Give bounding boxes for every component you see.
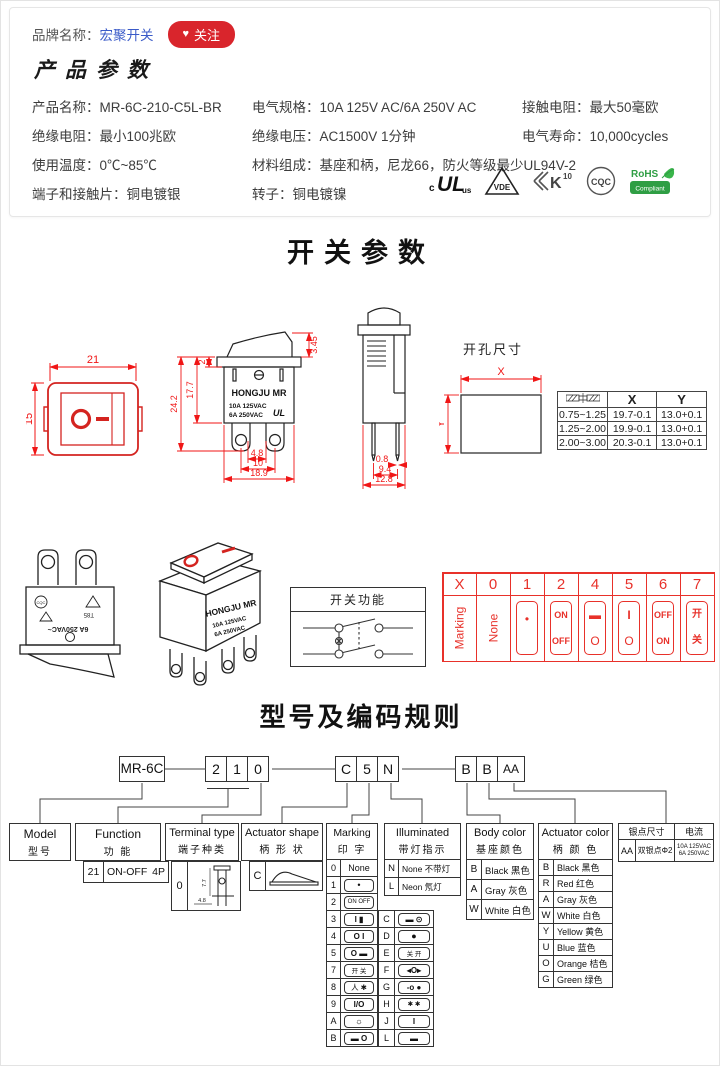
inv-cqc-mark: CQC — [37, 600, 46, 605]
marking-rows-b: C ▬ ⊙ D ● E 关 开 F ◂O▸ G -o ● H ✱ ✱ J I L — [378, 911, 434, 1047]
dim-pin-pitch: 10 — [253, 458, 263, 468]
hole-size-table: X Y 0.75~1.25 19.7-0.1 13.0+0.1 1.25~2.0… — [557, 391, 707, 450]
glyph-top: I — [627, 608, 630, 622]
cell-x: 19.7-0.1 — [608, 408, 657, 422]
section-title-coding-rules: 型号及编码规则 — [1, 697, 720, 734]
silver-cur2: 6A 250VAC — [675, 851, 713, 858]
spec-terminal-plating: 端子和接触片：铜电镀银 — [32, 183, 181, 203]
column-actuator-shape: Actuator shape 柄 形 状 — [241, 823, 323, 861]
mark-code: J — [379, 1013, 395, 1029]
actuator-color-row: O Orange 桔色 — [538, 955, 613, 972]
spec-insulation-voltage: 绝缘电压：AC1500V 1分钟 — [252, 125, 416, 145]
spec-insulation-resistance: 绝缘电阻：最小100兆欧 — [32, 125, 176, 145]
rocker-dash-mark — [96, 417, 109, 421]
glyph-bottom: O — [590, 634, 599, 648]
col-cn: 柄 形 状 — [242, 841, 322, 856]
cell-y: 13.0+0.1 — [657, 408, 707, 422]
body-color-rows: B Black 黑色 A Gray 灰色 W White 白色 — [466, 860, 534, 920]
mk-header-2: 2 — [544, 573, 579, 596]
color-code: B — [539, 860, 554, 875]
table-row: 2.00~3.00 20.3-0.1 13.0+0.1 — [558, 436, 707, 450]
dim-total-height: 24.2 — [169, 395, 179, 413]
illum-label: None 不带灯 — [399, 863, 460, 875]
brand-row: 品牌名称： 宏聚开关 ♥ 关注 — [32, 21, 235, 47]
code-group-3: B B AA — [456, 756, 525, 782]
cell-thickness: 0.75~1.25 — [558, 408, 608, 422]
spec-label: 端子和接触片： — [32, 187, 127, 202]
silver-desc: 双银点Φ2 — [636, 840, 675, 861]
glyph-bottom: O — [624, 634, 633, 648]
marking-row: 2 ON OFF — [326, 893, 378, 911]
body-color-row: A Gray 灰色 — [466, 879, 534, 900]
cell-thickness: 1.25~2.00 — [558, 422, 608, 436]
switch-3d-drawing: HONGJU MR 10A 125VAC 6A 250VAC — [146, 533, 278, 695]
spec-value: 0℃~85℃ — [100, 158, 157, 173]
follow-label: 关注 — [194, 25, 220, 44]
color-code: W — [539, 908, 554, 923]
certification-icons: c UL us VDE K 10 CQC RoHS Compliant — [428, 164, 678, 198]
mark-code: 9 — [327, 996, 341, 1012]
mk-glyph-off-on: OFF ON — [652, 601, 674, 655]
mk-glyph-dot: • — [516, 601, 538, 655]
column-function: Function 功 能 — [75, 823, 161, 861]
marking-row: H ✱ ✱ — [378, 995, 434, 1013]
code-21-underline — [207, 788, 249, 789]
hole-cutout-drawing: X Y — [439, 353, 554, 465]
cqc-cert-icon: CQC — [584, 164, 618, 198]
color-code: O — [539, 956, 554, 971]
inv-t85-label: T85 — [83, 611, 94, 617]
front-view-drawing: 21 15 — [26, 331, 176, 483]
mk-header-6: 6 — [646, 573, 681, 596]
color-label: Red 红色 — [554, 877, 612, 890]
silver-h2: 电流 — [675, 825, 713, 838]
terminal-code: 0 — [172, 862, 188, 910]
marking-code-table: X 0 1 2 4 5 6 7 Marking None • ON OFF ▬ … — [442, 572, 715, 662]
col-cn: 印 字 — [327, 841, 377, 856]
mk-header-7: 7 — [680, 573, 715, 596]
body-color-row: W White 白色 — [466, 899, 534, 920]
mk-glyph-i-o: I O — [618, 601, 640, 655]
dim-end-pin-width: 0.8 — [376, 454, 389, 464]
heart-icon: ♥ — [183, 29, 190, 40]
color-label: Gray 灰色 — [554, 893, 612, 906]
rohs-mark: RoHS — [631, 169, 659, 180]
col-en: Marking — [327, 827, 377, 839]
col-cn: 型号 — [10, 843, 70, 858]
column-terminal-type: Terminal type 端子种类 — [165, 823, 239, 861]
mark-glyph: 人 ✱ — [344, 981, 374, 994]
silver-point-box: 银点尺寸 电流 AA 双银点Φ2 10A 125VAC 6A 250VAC — [618, 824, 714, 862]
spec-label: 电气规格： — [252, 100, 320, 115]
color-label: Yellow 黄色 — [554, 925, 612, 938]
table-row: 0.75~1.25 19.7-0.1 13.0+0.1 — [558, 408, 707, 422]
color-code: A — [539, 892, 554, 907]
color-label: Orange 桔色 — [554, 957, 612, 970]
dim-flange: 2 — [197, 359, 207, 364]
mk-none-label: None — [486, 614, 500, 643]
function-rows: 21 ON-OFF 4P — [83, 862, 169, 883]
col-en: Actuator shape — [242, 827, 322, 839]
column-model: Model 型号 — [9, 823, 71, 861]
dim-pin-gap: 4.8 — [251, 448, 264, 458]
mark-code: E — [379, 945, 395, 961]
marking-row: J I — [378, 1012, 434, 1030]
end-view-drawing: 0.8 9.4 12.8 — [334, 293, 449, 498]
marking-row: 9 I/O — [326, 995, 378, 1013]
spec-value: AC1500V 1分钟 — [320, 129, 416, 144]
mark-code: C — [379, 911, 395, 927]
spec-label: 绝缘电阻： — [32, 129, 100, 144]
section-title-product-params: 产品参数 — [34, 54, 158, 84]
mark-code: 1 — [327, 877, 341, 893]
mk-header-5: 5 — [612, 573, 647, 596]
marking-row: G -o ● — [378, 978, 434, 996]
color-code: U — [539, 940, 554, 955]
mk-glyph-kai-guan: 开 关 — [686, 601, 708, 655]
vde-mark: VDE — [494, 183, 511, 192]
mark-code: L — [379, 1030, 395, 1046]
dim-front-width: 21 — [87, 354, 99, 366]
spec-label: 使用温度： — [32, 158, 100, 173]
col-en: Model — [10, 827, 70, 841]
mark-code: 8 — [327, 979, 341, 995]
mark-code: H — [379, 996, 395, 1012]
brand-label: 品牌名称： — [32, 24, 100, 44]
spec-value: 最小100兆欧 — [100, 129, 177, 144]
code-cell: 2 — [205, 756, 227, 782]
color-label: Green 绿色 — [554, 973, 612, 986]
glyph-top: ▬ — [589, 608, 601, 622]
marking-row: 1 • — [326, 876, 378, 894]
marking-row: 0 None — [326, 859, 378, 877]
marking-row: L ▬ — [378, 1029, 434, 1047]
spec-electrical-life: 电气寿命：10,000cycles — [522, 125, 668, 145]
body-color-row: B Black 黑色 — [466, 859, 534, 880]
cell-x: 20.3-0.1 — [608, 436, 657, 450]
mk-header-4: 4 — [578, 573, 613, 596]
mark-code: G — [379, 979, 395, 995]
mark-glyph: ▬ — [398, 1032, 430, 1045]
function-value: ON-OFF — [104, 866, 152, 878]
marking-row: A ☼ — [326, 1012, 378, 1030]
table-row: 1.25~2.00 19.9-0.1 13.0+0.1 — [558, 422, 707, 436]
mark-code: 7 — [327, 962, 341, 978]
side-rating1: 10A 125VAC — [229, 403, 267, 410]
mark-glyph: ✱ ✱ — [398, 998, 430, 1011]
mark-glyph: -o ● — [398, 981, 430, 994]
function-poles: 4P — [152, 866, 168, 878]
marking-row: E 关 开 — [378, 944, 434, 962]
hole-y-label: Y — [439, 420, 447, 428]
code-cell: AA — [497, 756, 525, 782]
k10-num: 10 — [563, 172, 572, 181]
rohs-sub: Compliant — [635, 186, 664, 193]
cqc-mark: CQC — [591, 177, 612, 187]
product-page: 品牌名称： 宏聚开关 ♥ 关注 产品参数 产品名称：MR-6C-210-C5L-… — [0, 0, 720, 1066]
side-view-drawing: HONGJU MR 10A 125VAC 6A 250VAC UL 3.45 2… — [169, 293, 334, 493]
section-title-switch-params: 开关参数 — [1, 231, 720, 270]
mark-glyph: 开 关 — [344, 964, 374, 977]
silver-cur1: 10A 125VAC — [675, 844, 713, 851]
dim-body-height: 17.7 — [185, 381, 195, 399]
color-code: G — [539, 972, 554, 987]
spec-temperature: 使用温度：0℃~85℃ — [32, 154, 157, 174]
hole-col-y: Y — [657, 392, 707, 408]
column-body-color: Body color 基座颜色 — [466, 823, 534, 861]
illuminated-row: N None 不带灯 — [384, 859, 461, 878]
shape-rows: C — [249, 862, 323, 891]
cell-y: 13.0+0.1 — [657, 436, 707, 450]
coding-tree-connectors — [1, 741, 720, 831]
illuminated-rows: N None 不带灯 L Neon 氖灯 — [384, 860, 461, 896]
actuator-color-row: U Blue 蓝色 — [538, 939, 613, 956]
mark-glyph: ◂O▸ — [398, 964, 430, 977]
spec-label: 产品名称： — [32, 100, 100, 115]
color-code: R — [539, 876, 554, 891]
mark-glyph: None — [341, 863, 377, 873]
glyph-bottom: ON — [656, 637, 670, 646]
spec-label: 绝缘电压： — [252, 129, 320, 144]
spec-value: 最大50毫欧 — [590, 100, 659, 115]
side-ul-mark: UL — [273, 408, 285, 418]
col-en: Illuminated — [385, 827, 460, 839]
switch-function-box: 开关功能 — [290, 587, 426, 667]
spec-electrical: 电气规格：10A 125V AC/6A 250V AC — [252, 96, 476, 116]
function-code: 21 — [84, 862, 104, 882]
switch-function-schematic — [291, 612, 425, 666]
terminal-row-0: 0 7.7 4.8 — [171, 861, 241, 911]
mk-header-1: 1 — [510, 573, 545, 596]
ul-cert-icon: c UL us — [428, 164, 474, 198]
glyph-bottom: 关 — [692, 636, 702, 646]
col-en: Body color — [467, 827, 533, 839]
marking-row: D ● — [378, 927, 434, 945]
actuator-color-row: W White 白色 — [538, 907, 613, 924]
color-code: Y — [539, 924, 554, 939]
actuator-color-rows: B Black 黑色 R Red 红色 A Gray 灰色 W White 白色… — [538, 860, 613, 988]
col-cn: 带灯指示 — [385, 841, 460, 856]
code-cell: C — [335, 756, 357, 782]
color-label: Black 黑色 — [554, 861, 612, 874]
mark-code: 4 — [327, 928, 341, 944]
spec-value: 10A 125V AC/6A 250V AC — [320, 100, 477, 115]
silver-value-row: AA 双银点Φ2 10A 125VAC 6A 250VAC — [618, 839, 714, 862]
vde-cert-icon: VDE — [484, 164, 520, 198]
marking-rows-a: 0 None 1 • 2 ON OFF 3 I ▮ 4 O I 5 O ▬ 7 … — [326, 860, 378, 1047]
mark-code: 5 — [327, 945, 341, 961]
function-row-21: 21 ON-OFF 4P — [83, 861, 169, 883]
product-info-card: 品牌名称： 宏聚开关 ♥ 关注 产品参数 产品名称：MR-6C-210-C5L-… — [9, 7, 711, 217]
k10-cert-icon: K 10 — [530, 164, 574, 198]
shape-row-c: C — [249, 861, 323, 891]
follow-button[interactable]: ♥ 关注 — [168, 21, 236, 48]
dim-end-width: 12.8 — [375, 474, 393, 484]
terminal-dim-h: 4.8 — [198, 898, 206, 904]
marking-row: 7 开 关 — [326, 961, 378, 979]
color-label: White 白色 — [554, 909, 612, 922]
inv-rating-label: 6A 250VAC~ — [48, 625, 89, 632]
col-cn: 功 能 — [76, 843, 160, 858]
col-cn: 柄 颜 色 — [539, 841, 612, 856]
spec-label: 接触电阻： — [522, 100, 590, 115]
glyph-top: 开 — [692, 610, 702, 620]
dim-width: 18.9 — [250, 468, 268, 478]
hole-col-x: X — [608, 392, 657, 408]
switch-function-title: 开关功能 — [291, 588, 425, 612]
col-cn: 基座颜色 — [467, 841, 533, 856]
actuator-color-row: R Red 红色 — [538, 875, 613, 892]
spec-product-name: 产品名称：MR-6C-210-C5L-BR — [32, 96, 222, 116]
mk-row-label: Marking — [453, 607, 467, 650]
mark-glyph: ▬ ⊙ — [398, 913, 430, 926]
glyph-top: • — [525, 612, 529, 626]
actuator-color-row: A Gray 灰色 — [538, 891, 613, 908]
color-label: Blue 蓝色 — [554, 941, 612, 954]
column-marking: Marking 印 字 — [326, 823, 378, 861]
mark-glyph: ● — [398, 930, 430, 943]
mark-code: B — [327, 1030, 341, 1046]
mark-glyph: ▬ O — [344, 1032, 374, 1045]
dim-tilt: 3.45 — [309, 336, 319, 354]
mark-glyph: ON OFF — [344, 896, 374, 909]
column-illuminated: Illuminated 带灯指示 — [384, 823, 461, 861]
side-brand-label: HONGJU MR — [231, 388, 287, 398]
color-code: B — [467, 860, 482, 879]
spec-label: 电气寿命： — [522, 129, 590, 144]
spec-label: 材料组成： — [252, 158, 320, 173]
code-group-2: C 5 N — [336, 756, 399, 782]
mk-header-0: 0 — [476, 573, 511, 596]
col-cn: 端子种类 — [166, 841, 238, 856]
color-code: A — [467, 880, 482, 899]
mark-glyph: O I — [344, 930, 374, 943]
shape-code: C — [250, 862, 266, 890]
col-en: Actuator color — [539, 827, 612, 839]
actuator-color-row: B Black 黑色 — [538, 859, 613, 876]
terminal-rows: 0 7.7 4.8 — [171, 862, 241, 911]
mark-code: F — [379, 962, 395, 978]
mark-glyph: I/O — [344, 998, 374, 1011]
mark-code: D — [379, 928, 395, 944]
code-cell: 0 — [247, 756, 269, 782]
mark-glyph: O ▬ — [344, 947, 374, 960]
mk-glyph-dash-o: ▬ O — [584, 601, 606, 655]
color-label: Black 黑色 — [482, 863, 533, 877]
spec-value: 铜电镀镍 — [293, 187, 347, 202]
spec-rotor-plating: 转子：铜电镀镍 — [252, 183, 347, 203]
mark-glyph: ☼ — [344, 1015, 374, 1028]
dim-front-height: 15 — [26, 413, 35, 425]
inverted-switch-drawing: CQC T85 6A 250VAC~ — [16, 541, 128, 691]
ul-c: c — [429, 183, 435, 194]
code-box-model: MR-6C — [119, 756, 165, 782]
col-en: Terminal type — [166, 827, 238, 839]
glyph-bottom: OFF — [552, 637, 570, 646]
spec-value: 10,000cycles — [590, 129, 669, 144]
illum-label: Neon 氖灯 — [399, 881, 460, 893]
brand-name-link[interactable]: 宏聚开关 — [100, 24, 154, 44]
cell-y: 13.0+0.1 — [657, 422, 707, 436]
terminal-dim-v: 7.7 — [202, 879, 208, 887]
color-label: Gray 灰色 — [482, 883, 533, 897]
color-label: White 白色 — [482, 903, 533, 917]
mark-glyph: I — [398, 1015, 430, 1028]
color-code: W — [467, 900, 482, 919]
col-en: Function — [76, 827, 160, 841]
code-group-1: 2 1 0 — [206, 756, 269, 782]
glyph-top: OFF — [654, 611, 672, 620]
silver-h1: 银点尺寸 — [619, 824, 675, 839]
cell-x: 19.9-0.1 — [608, 422, 657, 436]
illum-code: N — [385, 860, 399, 877]
silver-code: AA — [619, 840, 636, 861]
mk-header-x: X — [443, 573, 477, 596]
terminal-drawing: 7.7 4.8 — [188, 862, 240, 910]
actuator-profile-drawing — [266, 863, 322, 889]
code-cell: B — [455, 756, 477, 782]
mark-code: 0 — [327, 860, 341, 876]
marking-row: 4 O I — [326, 927, 378, 945]
marking-row: 5 O ▬ — [326, 944, 378, 962]
spec-label: 转子： — [252, 187, 293, 202]
side-rating2: 6A 250VAC — [229, 412, 263, 419]
hole-x-label: X — [497, 366, 505, 378]
spec-value: MR-6C-210-C5L-BR — [100, 100, 222, 115]
ul-us: us — [462, 186, 472, 195]
code-cell: N — [377, 756, 399, 782]
marking-row: B ▬ O — [326, 1029, 378, 1047]
mark-code: 3 — [327, 911, 341, 927]
panel-thickness-icon — [566, 393, 600, 403]
column-actuator-color: Actuator color 柄 颜 色 — [538, 823, 613, 861]
marking-row: F ◂O▸ — [378, 961, 434, 979]
code-cell: B — [476, 756, 498, 782]
cell-thickness: 2.00~3.00 — [558, 436, 608, 450]
actuator-color-row: Y Yellow 黄色 — [538, 923, 613, 940]
spec-contact-resistance: 接触电阻：最大50毫欧 — [522, 96, 659, 116]
mark-glyph: • — [344, 879, 374, 892]
mark-code: A — [327, 1013, 341, 1029]
glyph-top: ON — [554, 611, 568, 620]
dim-end-pin-pitch: 9.4 — [379, 464, 392, 474]
spec-value: 铜电镀银 — [127, 187, 181, 202]
illum-code: L — [385, 878, 399, 895]
mark-glyph: I ▮ — [344, 913, 374, 926]
code-cell: 5 — [356, 756, 378, 782]
mark-glyph: 关 开 — [398, 947, 430, 960]
mark-code: 2 — [327, 894, 341, 910]
mk-glyph-on-off: ON OFF — [550, 601, 572, 655]
k-mark: K — [550, 175, 562, 192]
ul-mark: UL — [437, 173, 465, 196]
code-cell: 1 — [226, 756, 248, 782]
illuminated-row: L Neon 氖灯 — [384, 877, 461, 896]
actuator-color-row: G Green 绿色 — [538, 971, 613, 988]
silver-header-row: 银点尺寸 电流 — [618, 823, 714, 840]
marking-row: 8 人 ✱ — [326, 978, 378, 996]
rohs-cert-icon: RoHS Compliant — [628, 164, 678, 198]
marking-row: C ▬ ⊙ — [378, 910, 434, 928]
marking-row: 3 I ▮ — [326, 910, 378, 928]
